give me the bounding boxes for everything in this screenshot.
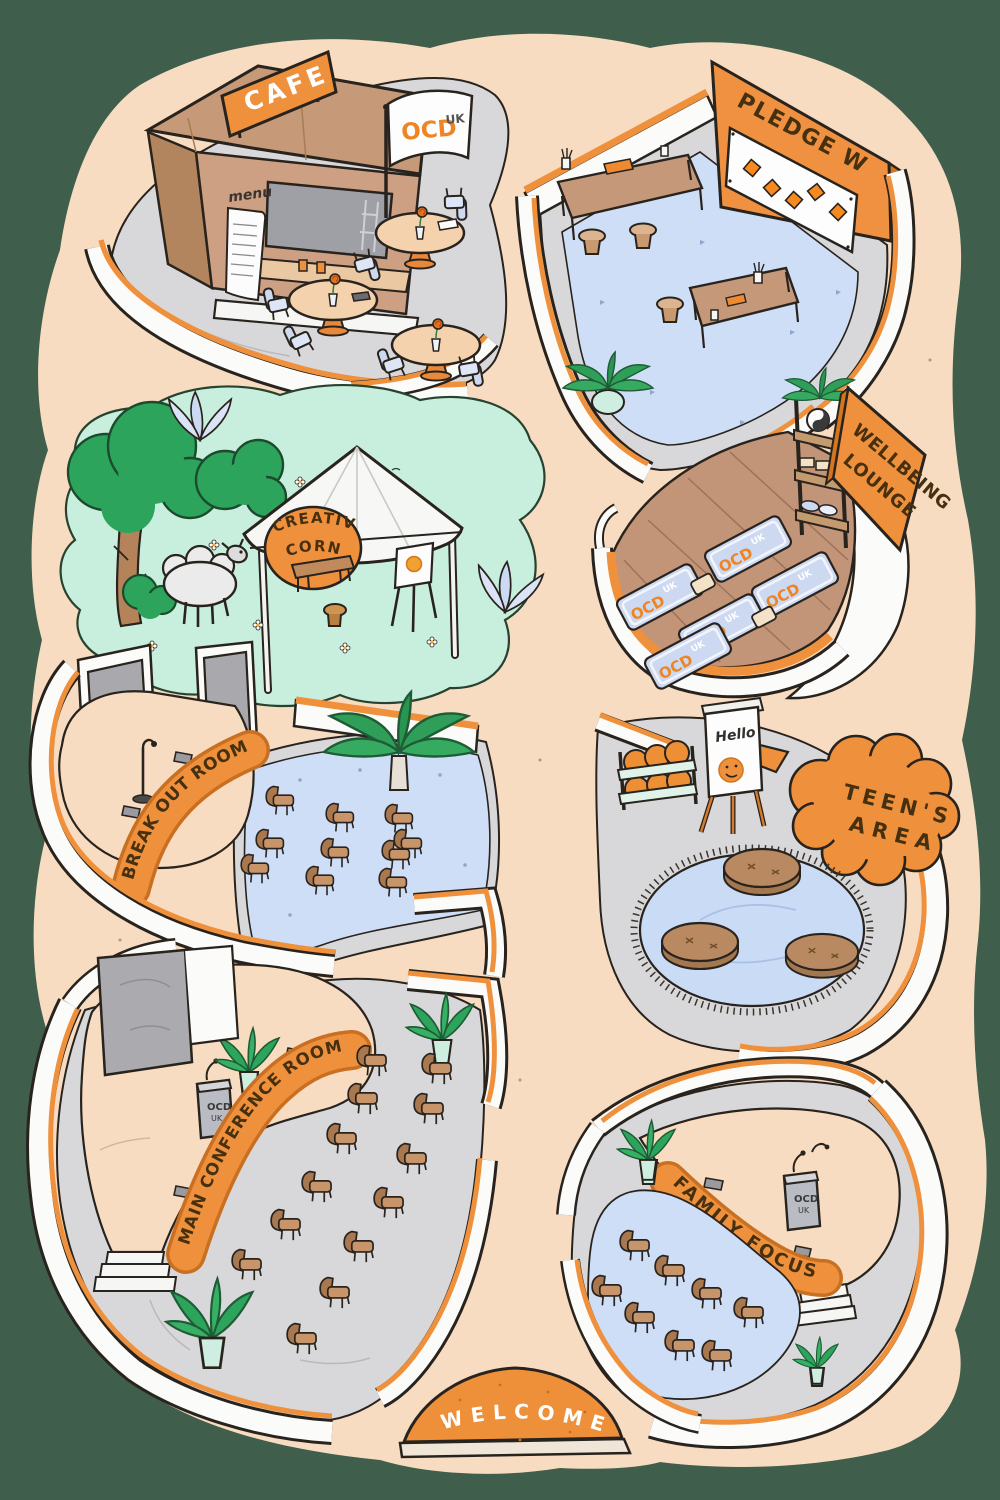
pouf (662, 923, 738, 969)
pouf (724, 849, 800, 895)
stage-steps (94, 1252, 176, 1291)
room-main-conference: MAIN CONFERENCE ROOM (39, 946, 497, 1432)
flag-brand-suffix: UK (445, 111, 466, 127)
smiley-icon (719, 758, 743, 782)
room-family-focus: FAMILY FOCUS (566, 1061, 935, 1435)
cafe-serving-window (266, 182, 392, 258)
area-teens: Hello TEEN'S AREA (596, 698, 959, 1062)
pouf (786, 934, 858, 978)
venue-map-illustration: OCD UK OCD UK (0, 0, 1000, 1500)
venue-map-svg: OCD UK OCD UK (0, 0, 1000, 1500)
mainconf-screen (98, 950, 192, 1075)
